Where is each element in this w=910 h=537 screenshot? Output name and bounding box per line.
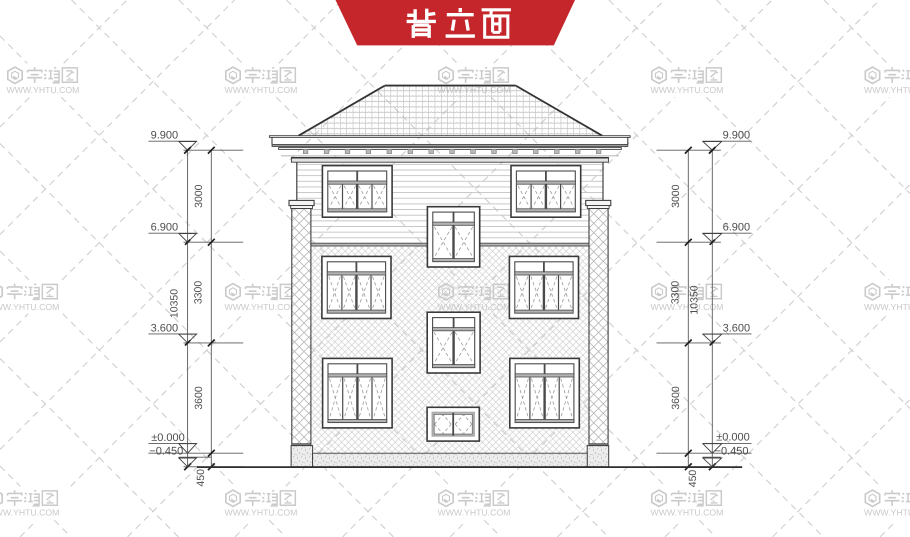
svg-text:10350: 10350 (169, 289, 181, 318)
svg-text:±0.000: ±0.000 (716, 432, 750, 444)
svg-text:3600: 3600 (670, 386, 682, 410)
svg-text:10350: 10350 (689, 285, 701, 314)
svg-text:6.900: 6.900 (723, 222, 751, 234)
svg-text:WWW.YHTU.COM: WWW.YHTU.COM (7, 85, 80, 95)
svg-text:WWW.YHTU.COM: WWW.YHTU.COM (864, 302, 910, 312)
svg-text:3.600: 3.600 (151, 322, 179, 334)
svg-text:3300: 3300 (192, 281, 204, 305)
svg-text:9.900: 9.900 (151, 130, 179, 142)
svg-text:450: 450 (195, 469, 207, 487)
svg-text:6.900: 6.900 (151, 222, 179, 234)
svg-text:3000: 3000 (670, 184, 682, 208)
svg-text:−0.450: −0.450 (715, 445, 749, 457)
svg-text:WWW.YHTU.COM: WWW.YHTU.COM (0, 507, 59, 517)
svg-text:WWW.YHTU.COM: WWW.YHTU.COM (225, 85, 298, 95)
svg-text:WWW.YHTU.COM: WWW.YHTU.COM (225, 507, 298, 517)
svg-text:WWW.YHTU.COM: WWW.YHTU.COM (864, 507, 910, 517)
svg-text:−0.450: −0.450 (149, 445, 183, 457)
svg-text:WWW.YHTU.COM: WWW.YHTU.COM (225, 302, 298, 312)
svg-text:WWW.YHTU.COM: WWW.YHTU.COM (438, 507, 511, 517)
svg-text:3300: 3300 (669, 281, 681, 305)
svg-text:3600: 3600 (193, 386, 205, 410)
svg-text:WWW.YHTU.COM: WWW.YHTU.COM (864, 85, 910, 95)
svg-text:9.900: 9.900 (723, 130, 751, 142)
svg-text:450: 450 (687, 470, 699, 488)
svg-text:3000: 3000 (193, 184, 205, 208)
svg-text:WWW.YHTU.COM: WWW.YHTU.COM (651, 85, 724, 95)
svg-text:±0.000: ±0.000 (151, 432, 185, 444)
svg-text:WWW.YHTU.COM: WWW.YHTU.COM (0, 302, 59, 312)
svg-text:3.600: 3.600 (723, 322, 751, 334)
svg-text:WWW.YHTU.COM: WWW.YHTU.COM (651, 507, 724, 517)
